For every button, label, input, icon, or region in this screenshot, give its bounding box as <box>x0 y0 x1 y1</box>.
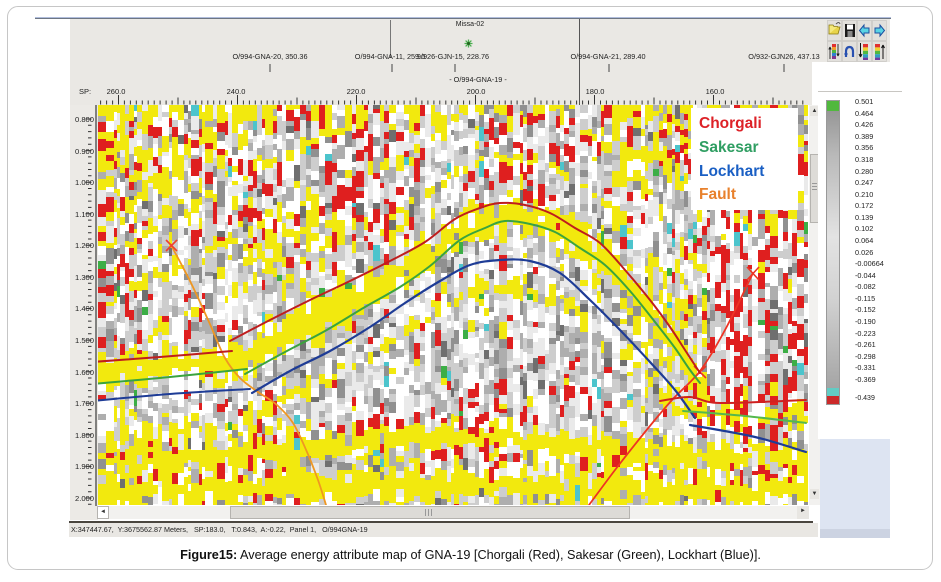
svg-text:Lockhart: Lockhart <box>699 163 764 180</box>
svg-text:Sakesar: Sakesar <box>699 139 758 156</box>
svg-text:Chorgali: Chorgali <box>699 115 762 132</box>
svg-text:Fault: Fault <box>699 186 736 203</box>
